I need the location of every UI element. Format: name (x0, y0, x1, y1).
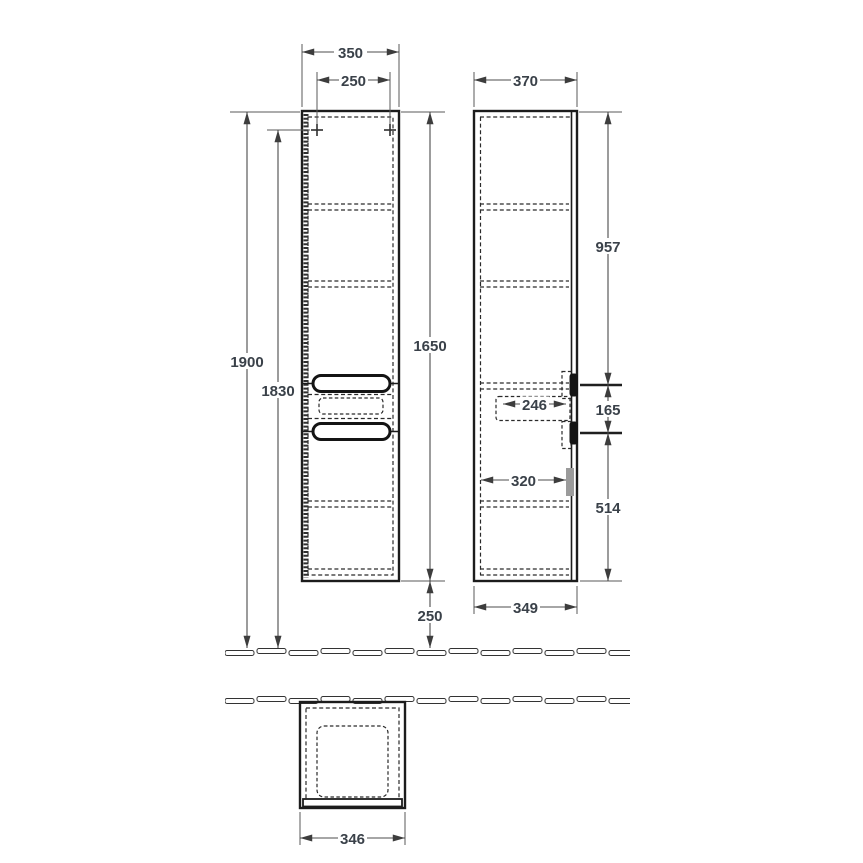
dim-bottom-depth: 349 (474, 586, 577, 617)
front-panel-section-gray (566, 468, 574, 496)
dim-floor-clearance: 250 (415, 581, 445, 648)
front-inner-drawer-dashed (319, 398, 383, 414)
drawing-page: 350 250 1900 1830 1650 250 370 (0, 0, 863, 863)
dim-side-depth: 370 (474, 72, 577, 107)
dim-label-top-view-width: 346 (340, 831, 365, 848)
upper-handle-side (570, 374, 579, 397)
dim-label-mounting-hole-height: 1830 (261, 383, 294, 400)
front-cabinet-outline (302, 111, 399, 581)
front-view (302, 111, 399, 581)
technical-drawing: 350 250 1900 1830 1650 250 370 (0, 0, 863, 863)
top-inner-dashed (306, 708, 399, 802)
top-cabinet-outline (300, 702, 405, 808)
wall-line (225, 696, 630, 704)
dim-label-total-height: 1900 (230, 354, 263, 371)
floor-line (225, 648, 630, 656)
dim-label-cabinet-height: 1650 (413, 338, 446, 355)
side-inner-dashed (480, 117, 570, 575)
dim-drawer-inner-depth: 246 (503, 397, 566, 415)
dim-label-side-depth: 370 (513, 73, 538, 90)
dim-label-bottom-depth: 349 (513, 600, 538, 617)
lower-handle-side (570, 422, 579, 445)
dim-label-mounting-hole-spacing: 250 (341, 73, 366, 90)
dim-label-drawer-inner-depth: 246 (522, 397, 547, 414)
mounting-point-cross-right (384, 124, 396, 136)
dim-inner-depth: 320 (481, 473, 566, 491)
dim-label-lower-handle-to-bottom: 514 (595, 500, 621, 517)
front-inner-dashed (308, 117, 393, 575)
dim-label-top-to-upper-handle: 957 (595, 239, 620, 256)
dim-cabinet-height: 1650 (401, 112, 450, 581)
mounting-point-cross-left (311, 124, 323, 136)
dim-lower-handle-to-bottom: 514 (580, 433, 623, 581)
dim-top-to-upper-handle: 957 (579, 112, 623, 385)
dim-label-inner-depth: 320 (511, 473, 536, 490)
dim-mounting-hole-spacing: 250 (317, 72, 390, 124)
dim-label-floor-clearance: 250 (417, 608, 442, 625)
dim-top-view-width: 346 (300, 812, 405, 848)
upper-handle (313, 376, 390, 392)
top-door-strip (303, 799, 402, 807)
lower-handle (313, 424, 390, 440)
side-view (474, 111, 578, 581)
side-cabinet-outline (474, 111, 577, 581)
dim-handle-spacing: 165 (580, 385, 623, 433)
dim-total-height: 1900 (227, 112, 300, 648)
dim-label-front-width: 350 (338, 45, 363, 62)
dim-label-handle-spacing: 165 (595, 402, 620, 419)
top-interior-dashed (317, 726, 388, 797)
top-view (300, 702, 405, 808)
